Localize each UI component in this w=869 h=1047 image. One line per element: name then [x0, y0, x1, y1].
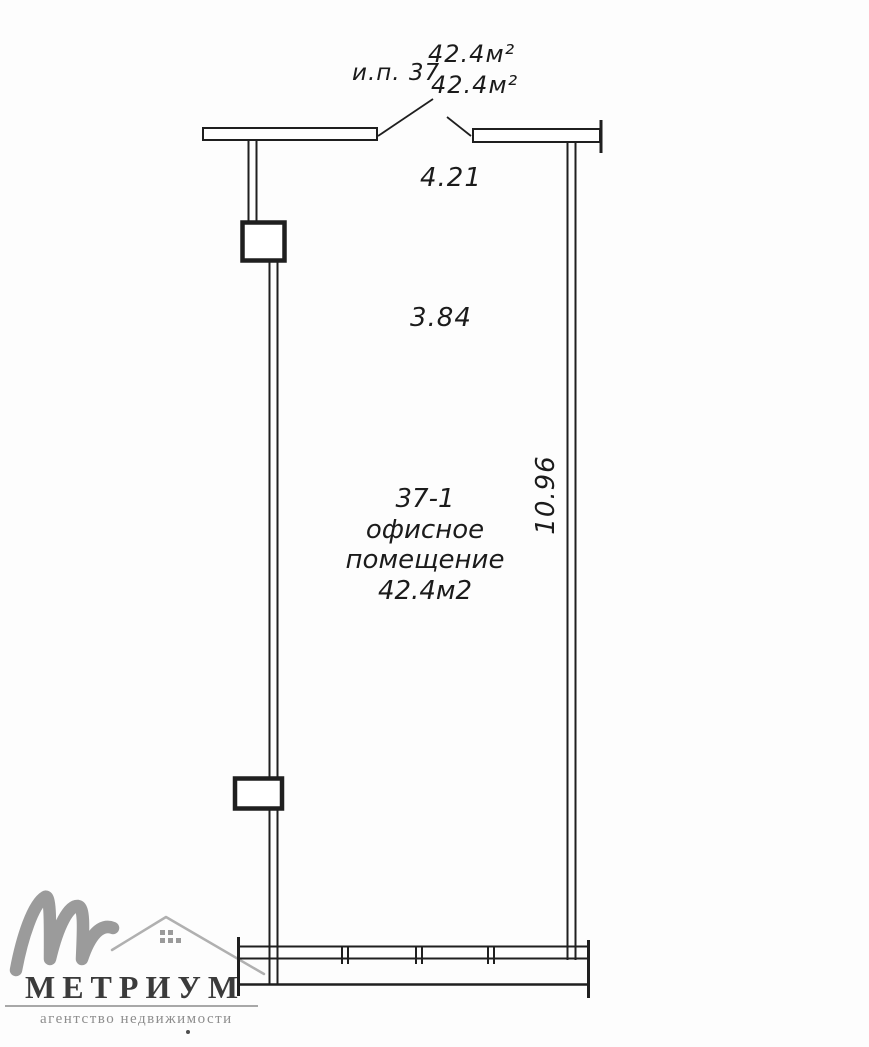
unit-area-annotation-1: 42.4м² [428, 40, 515, 68]
right-wall [568, 142, 576, 960]
inner-width-dimension: 3.84 [410, 303, 472, 333]
room-type-line2: помещение [300, 545, 550, 576]
top-wall-right-segment [473, 129, 600, 142]
top-width-dimension: 4.21 [420, 163, 482, 193]
left-wall-middle [270, 261, 278, 779]
unit-area-annotation-2: 42.4м² [431, 71, 518, 99]
room-area: 42.4м2 [300, 576, 550, 607]
window-mullion-1 [342, 947, 348, 964]
entrance-leader-left [378, 99, 433, 136]
column-2 [235, 779, 282, 809]
left-wall-upper [249, 140, 257, 224]
top-wall-left-segment [203, 128, 377, 140]
scanned-floor-plan-page: МЕТРИУМ агентство недвижимости [0, 0, 869, 1047]
window-mullion-2 [416, 947, 422, 964]
room-type-line1: офисное [300, 515, 550, 546]
entrance-leader-right [447, 117, 471, 136]
window-mullion-3 [488, 947, 494, 964]
window-wall-bottom [237, 937, 590, 998]
unit-number-annotation: и.п. 37 [352, 60, 440, 86]
room-label: 37-1 офисное помещение 42.4м2 [300, 484, 550, 606]
room-number: 37-1 [300, 484, 550, 515]
column-1 [243, 223, 285, 261]
